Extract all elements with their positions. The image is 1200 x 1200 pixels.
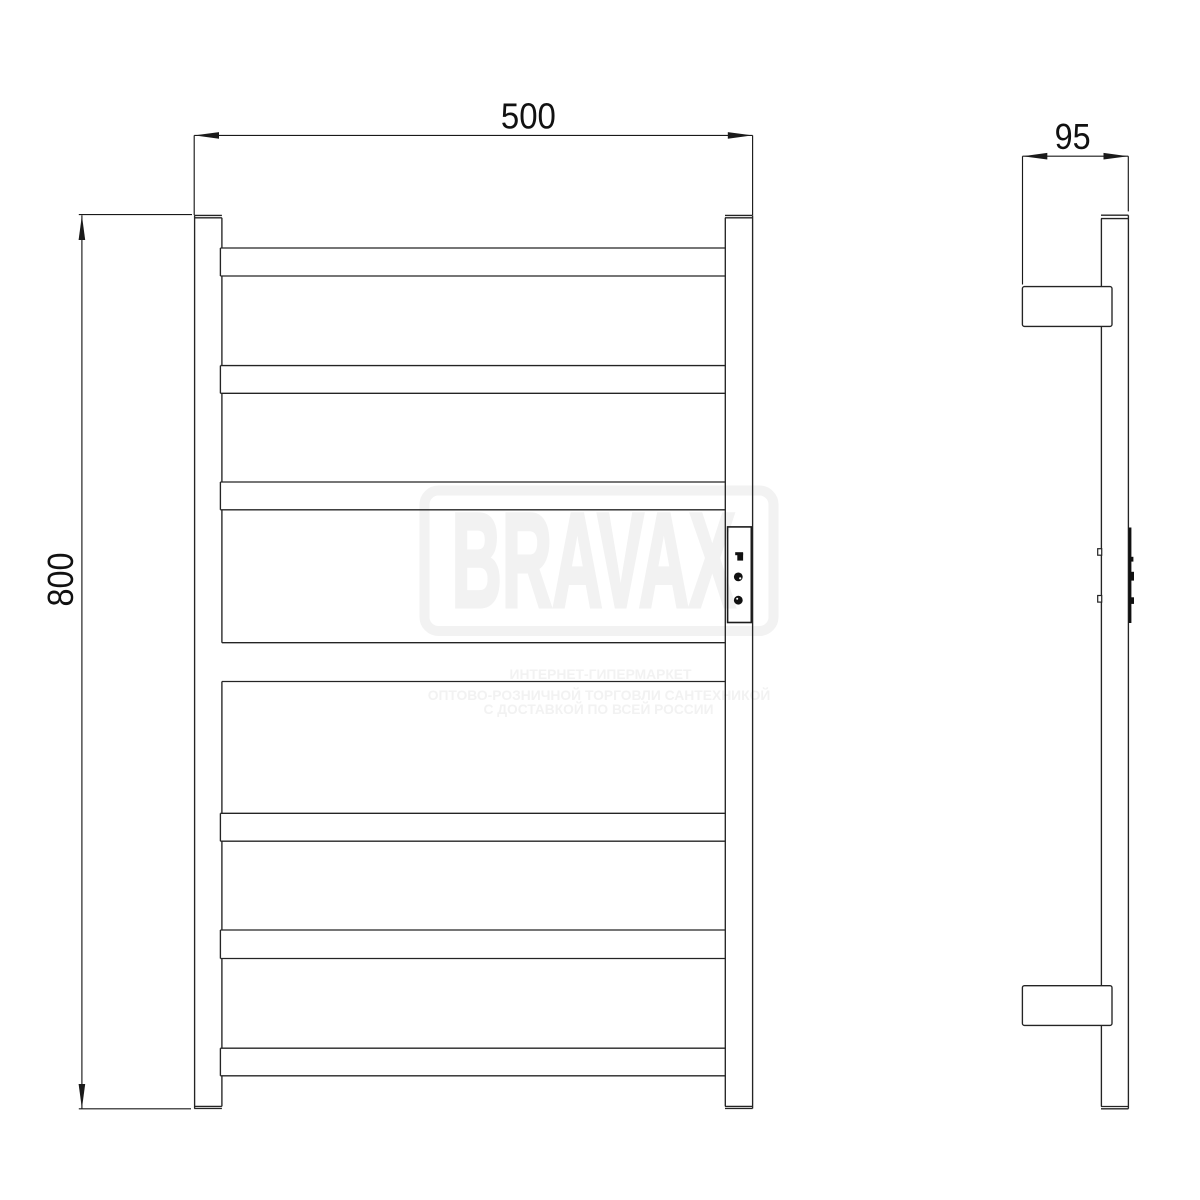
svg-text:ИНТЕРНЕТ-ГИПЕРМАРКЕТ: ИНТЕРНЕТ-ГИПЕРМАРКЕТ (510, 666, 692, 682)
svg-text:BRAVAX: BRAVAX (452, 487, 736, 636)
svg-text:800: 800 (40, 553, 81, 607)
svg-text:500: 500 (501, 96, 556, 137)
svg-text:С ДОСТАВКОЙ ПО ВСЕЙ РОССИИ: С ДОСТАВКОЙ ПО ВСЕЙ РОССИИ (484, 700, 714, 717)
svg-text:95: 95 (1055, 116, 1091, 157)
